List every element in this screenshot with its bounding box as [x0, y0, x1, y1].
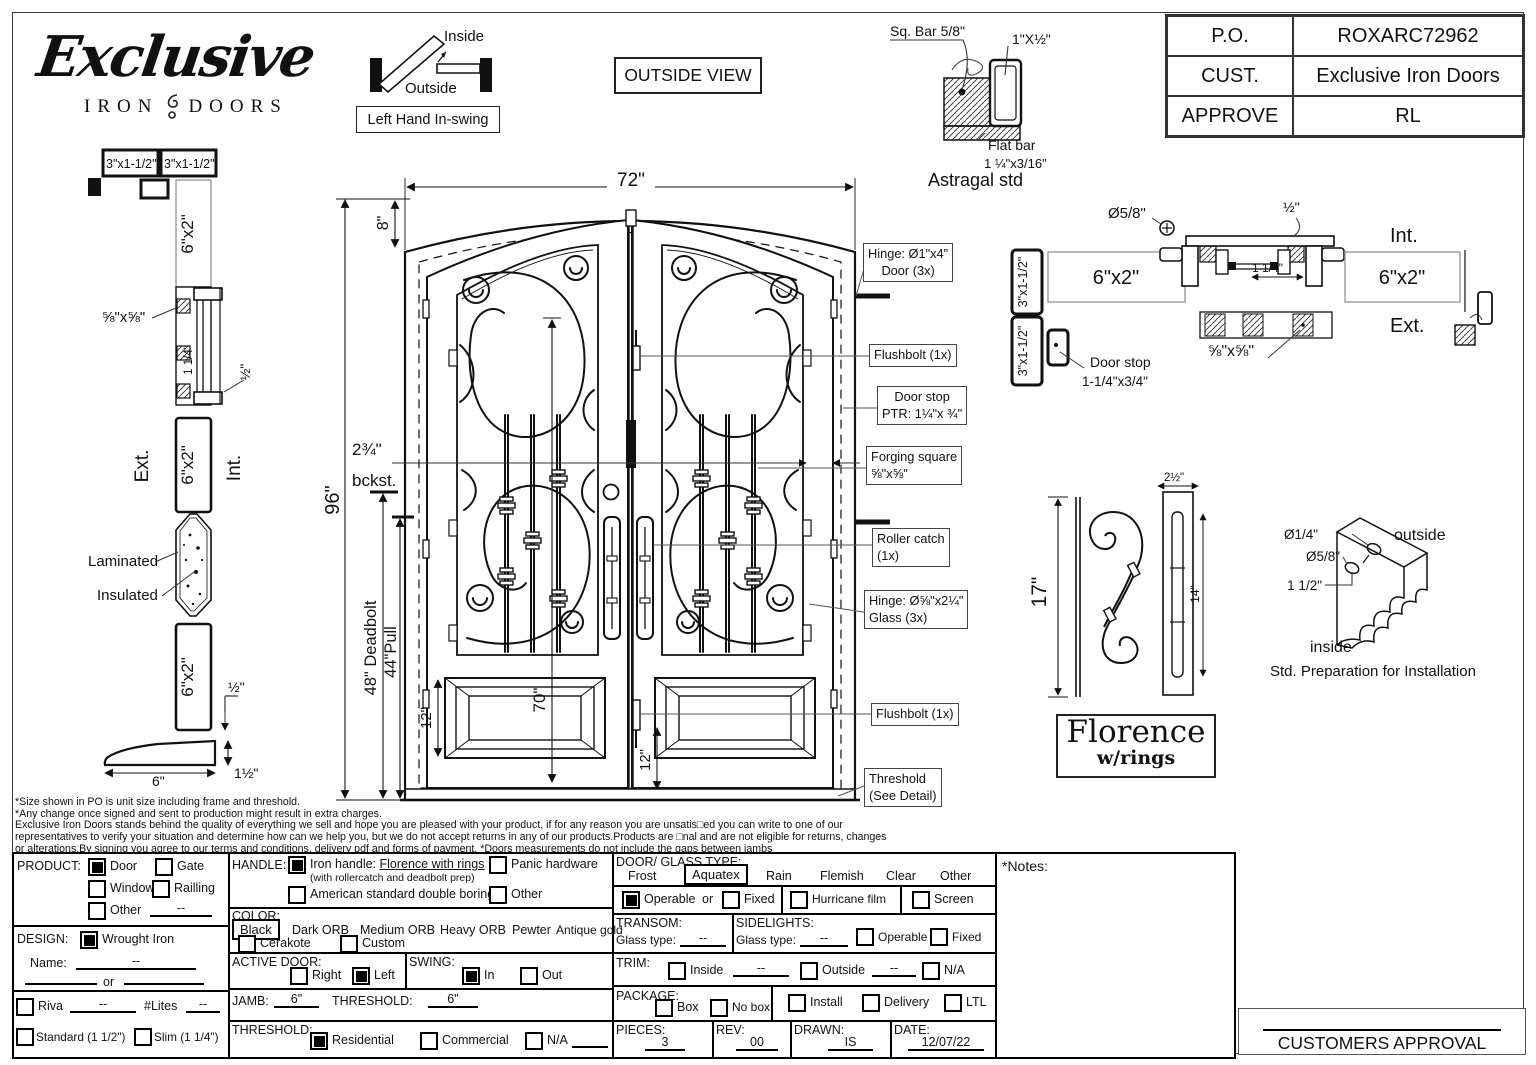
handle-detail: 17" 2½" 14": [1030, 465, 1225, 715]
dim-panel: 12": [418, 707, 435, 729]
design-label: DESIGN:: [17, 932, 68, 946]
approval-label: CUSTOMERS APPROVAL: [1239, 1033, 1525, 1054]
drawing-sheet: Exclusive IRON DOORS Inside Outside Left…: [0, 0, 1536, 1065]
left-tube-top-label: 6"x2": [178, 214, 197, 253]
jamb-threshold-value[interactable]: 6": [428, 992, 478, 1008]
left-box1-label: 3"x1-1/2": [106, 157, 157, 171]
head-tube-right: 6"x2": [1379, 267, 1425, 289]
swing-out-checkbox[interactable]: [520, 967, 538, 985]
glass-or-label: or: [702, 892, 713, 906]
prep-d2: Ø5/8": [1306, 549, 1340, 564]
head-ext: Ext.: [1390, 315, 1424, 337]
glass-aquatex-option[interactable]: Aquatex: [684, 864, 748, 885]
head-bar: ⅝"x⅝": [1208, 343, 1254, 360]
laminated-label: Laminated: [88, 553, 158, 570]
riva-checkbox[interactable]: [16, 998, 34, 1016]
jamb-value[interactable]: 6": [274, 992, 319, 1008]
handle-american-label: American standard double boring: [310, 887, 494, 901]
hurricane-checkbox[interactable]: [790, 891, 808, 909]
handle-name: Florence: [1058, 716, 1214, 749]
swing-outside-label: Outside: [405, 80, 457, 97]
threshold-na-label: N/A: [547, 1033, 568, 1047]
dim-pull: 44"Pull: [382, 626, 400, 678]
swing-in-label: In: [484, 968, 494, 982]
po-label: P.O.: [1167, 16, 1293, 56]
trim-label: TRIM:: [616, 956, 650, 970]
swing-label: SWING:: [409, 955, 455, 969]
handle-panic-checkbox[interactable]: [489, 856, 507, 874]
glass-frost-option[interactable]: Frost: [628, 869, 656, 883]
astragal-sqbar-label: Sq. Bar 5/8": [890, 23, 965, 39]
dim-glass: 70": [530, 688, 549, 713]
jamb-label: JAMB:: [232, 994, 269, 1008]
glass-fixed-label: Fixed: [744, 892, 775, 906]
logo-doors-text: DOORS: [188, 96, 287, 118]
design-name-value[interactable]: --: [76, 954, 196, 970]
riva-label: Riva: [38, 999, 63, 1013]
callout-doorstop: Door stop PTR: 1¼"x ¾": [877, 386, 967, 425]
package-delivery-label: Delivery: [884, 995, 929, 1009]
handle-iron-checkbox[interactable]: [288, 856, 306, 874]
logo-iron-text: IRON: [84, 96, 158, 118]
dim-backset2: bckst.: [352, 471, 396, 490]
prep-inside: inside: [1310, 639, 1352, 656]
threshold-residential-label: Residential: [332, 1033, 394, 1047]
callout-threshold-l1: Threshold: [869, 771, 937, 788]
approve-value: RL: [1293, 96, 1523, 136]
handle-iron-name: Florence with rings: [380, 857, 485, 871]
head-half: ½": [1283, 199, 1300, 215]
product-window-label: Window: [110, 881, 154, 895]
color-heavy-option[interactable]: Heavy ORB: [440, 923, 506, 937]
glass-other-option[interactable]: Other: [940, 869, 971, 883]
design-wrought-label: Wrought Iron: [102, 932, 174, 946]
package-install-label: Install: [810, 995, 843, 1009]
head-box2: 3"x1-1/2": [1016, 326, 1030, 377]
threshold-height-dim: 1½": [234, 765, 258, 781]
color-cerakote-label: Cerakote: [260, 936, 311, 950]
product-window-checkbox[interactable]: [88, 880, 106, 898]
callout-forging-l1: Forging square: [871, 449, 957, 466]
package-ltl-checkbox[interactable]: [944, 994, 962, 1012]
callout-hinge-glass: Hinge: Ø⅝"x2¼" Glass (3x): [864, 590, 968, 629]
callout-roller-l1: Roller catch: [877, 531, 945, 548]
color-antique-option[interactable]: Antique gold: [556, 923, 623, 937]
left-half2: ½": [228, 679, 245, 695]
callout-hinge-door-l1: Hinge: Ø1"x4": [868, 246, 948, 263]
signature-line[interactable]: [1263, 1029, 1501, 1031]
handle-name-sub: w/rings: [1058, 749, 1214, 768]
product-door-checkbox[interactable]: [88, 858, 106, 876]
glass-operable-label: Operable: [644, 892, 695, 906]
head-section-detail: 3"x1-1/2" 3"x1-1/2" 6"x2" Ø5/8" ½" 1 1/4…: [1000, 195, 1522, 400]
astragal-flatbar-size: 1 ¼"x3/16": [984, 156, 1047, 171]
trim-outside-checkbox[interactable]: [800, 962, 818, 980]
sidelights-glass-type-label: Glass type:: [736, 933, 796, 947]
handle-name-box: Florence w/rings: [1056, 714, 1216, 778]
outside-view-label: OUTSIDE VIEW: [614, 57, 762, 94]
threshold-commercial-checkbox[interactable]: [420, 1032, 438, 1050]
handle-other-label: Other: [511, 887, 542, 901]
po-table: P.O. ROXARC72962 CUST. Exclusive Iron Do…: [1165, 14, 1525, 138]
slim-label: Slim (1 1/4"): [154, 1030, 219, 1044]
handle-label: HANDLE:: [232, 858, 286, 872]
color-custom-checkbox[interactable]: [340, 935, 358, 953]
lites-value[interactable]: --: [186, 997, 220, 1013]
astragal-flatbar-label: Flat bar: [988, 137, 1036, 153]
handle-width-dim: 2½": [1164, 472, 1184, 484]
logo-scroll-icon: [162, 92, 184, 122]
sidelights-label: SIDELIGHTS:: [736, 916, 814, 930]
or-line-left: [25, 983, 97, 985]
product-gate-label: Gate: [177, 859, 204, 873]
threshold-na-checkbox[interactable]: [525, 1032, 543, 1050]
left-tube-mid-label: 6"x2": [178, 445, 197, 484]
color-medium-option[interactable]: Medium ORB: [360, 923, 435, 937]
threshold-label: THRESHOLD:: [232, 1023, 313, 1037]
color-custom-label: Custom: [362, 936, 405, 950]
sidelights-operable-label: Operable: [878, 930, 927, 944]
head-int: Int.: [1390, 225, 1418, 247]
threshold-width-dim: 6": [152, 773, 165, 789]
swing-inside-label: Inside: [444, 28, 484, 45]
callout-doorstop-l2: PTR: 1¼"x ¾": [882, 406, 962, 423]
disclaimer: *Size shown in PO is unit size including…: [15, 797, 886, 855]
glass-fixed-checkbox[interactable]: [722, 891, 740, 909]
left-int-label: Int.: [224, 455, 245, 481]
product-other-label: Other: [110, 903, 141, 917]
screen-label: Screen: [934, 892, 974, 906]
sidelights-glass-type-value[interactable]: --: [800, 931, 848, 947]
package-box-checkbox[interactable]: [655, 999, 673, 1017]
notes-box[interactable]: [995, 852, 1236, 1059]
trim-na-label: N/A: [944, 963, 965, 977]
active-right-checkbox[interactable]: [290, 967, 308, 985]
handle-iron-label: Iron handle: Florence with rings: [310, 857, 484, 871]
active-right-label: Right: [312, 968, 341, 982]
product-other-checkbox[interactable]: [88, 902, 106, 920]
color-cerakote-checkbox[interactable]: [238, 935, 256, 953]
prep-caption: Std. Preparation for Installation: [1270, 663, 1476, 680]
disclaimer-l4: representatives to verify your situation…: [15, 832, 886, 844]
company-logo: Exclusive IRON DOORS: [38, 24, 313, 122]
callout-roller-l2: (1x): [877, 548, 945, 565]
handle-scroll: [1090, 512, 1142, 663]
handle-slot-dim: 14": [1188, 585, 1202, 603]
or-label: or: [103, 975, 114, 989]
swing-caption-box: Left Hand In-swing: [356, 106, 500, 133]
design-name-label: Name:: [30, 956, 67, 970]
glass-operable-checkbox[interactable]: [622, 891, 640, 909]
package-delivery-checkbox[interactable]: [862, 994, 880, 1012]
active-left-checkbox[interactable]: [352, 967, 370, 985]
trim-outside-value[interactable]: --: [872, 961, 916, 977]
color-pewter-option[interactable]: Pewter: [512, 923, 551, 937]
head-doorstop-l1: Door stop: [1090, 354, 1151, 370]
callout-hinge-glass-l2: Glass (3x): [869, 610, 963, 627]
trim-outside-label: Outside: [822, 963, 865, 977]
logo-script-text: Exclusive: [33, 24, 317, 90]
slim-checkbox[interactable]: [134, 1028, 152, 1046]
design-wrought-checkbox[interactable]: [80, 931, 98, 949]
prep-d3: 1 1/2": [1287, 578, 1322, 593]
left-tube-bot-label: 6"x2": [178, 657, 197, 696]
package-nobox-checkbox[interactable]: [710, 999, 728, 1017]
or-line-right: [124, 983, 204, 985]
callout-hinge-door-l2: Door (3x): [868, 263, 948, 280]
prep-outside: outside: [1394, 527, 1446, 544]
threshold-commercial-label: Commercial: [442, 1033, 509, 1047]
product-gate-checkbox[interactable]: [155, 858, 173, 876]
product-railing-label: Railling: [174, 881, 215, 895]
left-dim114: 1 1/4": [183, 345, 195, 375]
cust-label: CUST.: [1167, 56, 1293, 96]
sidelights-fixed-label: Fixed: [952, 930, 981, 944]
lites-label: #Lites: [144, 999, 177, 1013]
left-box2-label: 3"x1-1/2": [164, 157, 215, 171]
transom-label: TRANSOM:: [616, 916, 682, 930]
dim-deadbolt: 48" Deadbolt: [362, 600, 380, 695]
jamb-threshold-label: THRESHOLD:: [332, 994, 413, 1008]
glass-clear-option[interactable]: Clear: [886, 869, 916, 883]
package-ltl-label: LTL: [966, 995, 987, 1009]
standard-checkbox[interactable]: [16, 1028, 34, 1046]
trim-na-checkbox[interactable]: [922, 962, 940, 980]
swing-diagram: [352, 22, 512, 112]
swing-out-label: Out: [542, 968, 562, 982]
approve-label: APPROVE: [1167, 96, 1293, 136]
handle-height-dim: 17": [1028, 577, 1051, 608]
callout-roller: Roller catch (1x): [872, 528, 950, 567]
approval-box: CUSTOMERS APPROVAL: [1238, 1008, 1526, 1055]
threshold-na-line: [572, 1046, 608, 1048]
notes-label: *Notes:: [1002, 858, 1048, 874]
rev-value[interactable]: 00: [736, 1035, 778, 1051]
handle-american-checkbox[interactable]: [288, 886, 306, 904]
transom-glass-type-label: Glass type:: [616, 933, 676, 947]
glass-rain-option[interactable]: Rain: [766, 869, 792, 883]
package-nobox-label: No box: [732, 1000, 770, 1014]
drawn-value[interactable]: IS: [828, 1035, 873, 1051]
date-value[interactable]: 12/07/22: [908, 1035, 984, 1051]
dim-flush: 12": [637, 749, 654, 771]
left-bar-label: ⅝"x⅝": [102, 309, 145, 326]
left-ext-label: Ext.: [132, 450, 153, 483]
astragal-tube-label: 1"X½": [1012, 31, 1051, 47]
cust-value: Exclusive Iron Doors: [1293, 56, 1523, 96]
callout-flushbolt-top: Flushbolt (1x): [869, 344, 957, 367]
product-other-value[interactable]: --: [150, 901, 212, 917]
trim-inside-label: Inside: [690, 963, 723, 977]
callout-hinge-glass-l1: Hinge: Ø⅝"x2¼": [869, 593, 963, 610]
hurricane-label: Hurricane film: [812, 892, 886, 906]
package-box-label: Box: [677, 1000, 699, 1014]
head-doorstop-l2: 1-1/4"x3/4": [1082, 374, 1148, 389]
standard-label: Standard (1 1/2"): [36, 1030, 125, 1044]
transom-glass-type-value[interactable]: --: [680, 931, 726, 947]
callout-hinge-door: Hinge: Ø1"x4" Door (3x): [863, 243, 953, 282]
riva-value[interactable]: --: [70, 997, 136, 1013]
sidelights-operable-checkbox[interactable]: [856, 928, 874, 946]
prep-detail: Ø1/4" Ø5/8" 1 1/2" outside inside Std. P…: [1282, 495, 1522, 690]
sidelights-fixed-checkbox[interactable]: [930, 928, 948, 946]
head-dia: Ø5/8": [1108, 205, 1146, 222]
product-railing-checkbox[interactable]: [152, 880, 170, 898]
handle-panic-label: Panic hardware: [511, 857, 598, 871]
handle-iron-text: Iron handle:: [310, 857, 380, 871]
callout-forging: Forging square ⅝"x⅝": [866, 446, 962, 485]
callout-flushbolt-bottom: Flushbolt (1x): [871, 703, 959, 726]
active-door-label: ACTIVE DOOR:: [232, 955, 322, 969]
threshold-residential-checkbox[interactable]: [310, 1032, 328, 1050]
po-value: ROXARC72962: [1293, 16, 1523, 56]
trim-inside-value[interactable]: --: [733, 961, 789, 977]
head-box1: 3"x1-1/2": [1016, 257, 1030, 308]
disclaimer-l1: *Size shown in PO is unit size including…: [15, 797, 886, 809]
dim-height: 96": [322, 485, 344, 514]
callout-forging-l2: ⅝"x⅝": [871, 466, 957, 483]
package-install-checkbox[interactable]: [788, 994, 806, 1012]
dim-width: 72": [617, 170, 645, 191]
left-dim-half: ½": [237, 364, 253, 381]
insulated-label: Insulated: [97, 587, 158, 604]
head-tube-left: 6"x2": [1093, 267, 1139, 289]
handle-iron-sub: (with rollercatch and deadbolt prep): [310, 872, 475, 884]
left-jamb-section: 3"x1-1/2" 3"x1-1/2" 6"x2" ⅝"x⅝" 1 1/4" ½…: [80, 140, 345, 805]
glass-flemish-option[interactable]: Flemish: [820, 869, 864, 883]
screen-checkbox[interactable]: [912, 891, 930, 909]
handle-other-checkbox[interactable]: [489, 886, 507, 904]
swing-in-checkbox[interactable]: [462, 967, 480, 985]
product-door-label: Door: [110, 859, 137, 873]
active-left-label: Left: [374, 968, 395, 982]
dim-arch: 8": [375, 216, 392, 231]
dim-backset: 2¾": [352, 440, 382, 459]
prep-d1: Ø1/4": [1284, 527, 1318, 542]
pieces-value[interactable]: 3: [645, 1035, 685, 1051]
trim-inside-checkbox[interactable]: [668, 962, 686, 980]
callout-doorstop-l1: Door stop: [882, 389, 962, 406]
head-dim114: 1 1/4": [1252, 261, 1283, 275]
product-label: PRODUCT:: [17, 859, 81, 873]
